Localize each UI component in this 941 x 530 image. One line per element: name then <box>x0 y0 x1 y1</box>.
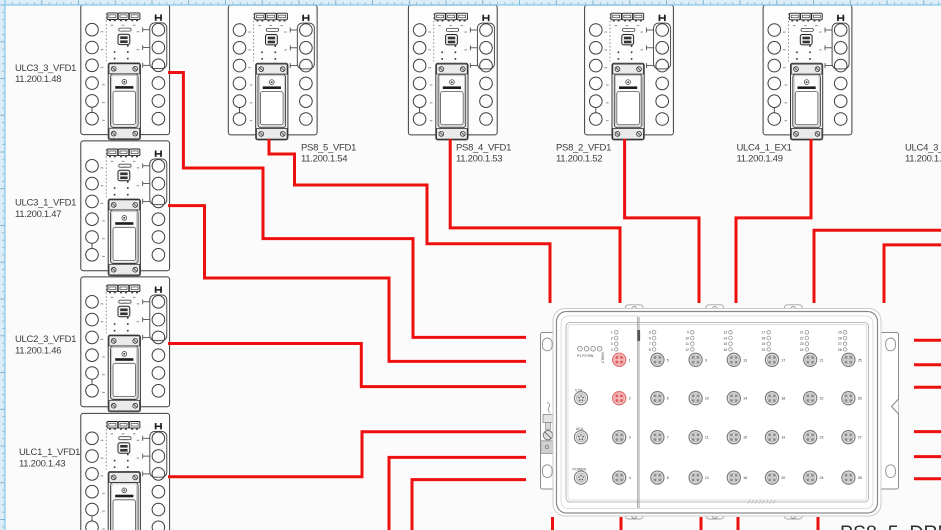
svg-text:13: 13 <box>723 331 727 335</box>
svg-text:8: 8 <box>667 476 669 480</box>
svg-text:28: 28 <box>858 476 862 480</box>
svg-text:4: 4 <box>611 348 613 352</box>
svg-text:3: 3 <box>629 436 631 440</box>
svg-text:9: 9 <box>687 331 689 335</box>
svg-text:15: 15 <box>723 342 727 346</box>
svg-text:11.200.1.53: 11.200.1.53 <box>456 154 502 165</box>
svg-text:11.200.1.50: 11.200.1.50 <box>905 154 941 165</box>
svg-text:11.200.1.52: 11.200.1.52 <box>556 154 602 165</box>
svg-text:19: 19 <box>781 436 785 440</box>
svg-text:17: 17 <box>761 331 765 335</box>
svg-text:11.200.1.54: 11.200.1.54 <box>301 154 347 165</box>
svg-text:27: 27 <box>838 342 842 346</box>
svg-text:25: 25 <box>858 358 862 362</box>
svg-text:11.200.1.49: 11.200.1.49 <box>737 154 783 165</box>
svg-text:11: 11 <box>705 436 709 440</box>
svg-text:11.200.1.43: 11.200.1.43 <box>19 458 65 469</box>
svg-text:10: 10 <box>705 397 709 401</box>
svg-text:V.24: V.24 <box>575 389 582 393</box>
svg-text:14: 14 <box>743 397 747 401</box>
svg-text:19: 19 <box>761 342 765 346</box>
svg-text:11: 11 <box>685 342 689 346</box>
svg-text:ULC2_3_VFD1: ULC2_3_VFD1 <box>15 334 76 345</box>
svg-text:11.200.1.46: 11.200.1.46 <box>15 345 61 356</box>
svg-text:21: 21 <box>820 358 824 362</box>
svg-text:23: 23 <box>820 436 824 440</box>
svg-text:11.200.1.47: 11.200.1.47 <box>15 209 61 220</box>
svg-text:ACA: ACA <box>576 427 584 431</box>
svg-text:9: 9 <box>705 358 707 362</box>
svg-text:ULC4_1_EX1: ULC4_1_EX1 <box>737 142 792 153</box>
svg-text:3: 3 <box>611 342 613 346</box>
svg-text:22: 22 <box>820 397 824 401</box>
svg-text:6: 6 <box>649 336 651 340</box>
svg-text:16: 16 <box>723 348 727 352</box>
svg-text:24: 24 <box>820 476 824 480</box>
svg-text:20: 20 <box>761 348 765 352</box>
svg-text:20: 20 <box>781 476 785 480</box>
svg-text:26: 26 <box>838 336 842 340</box>
svg-text:12: 12 <box>705 476 709 480</box>
svg-text:ULC1_1_VFD1: ULC1_1_VFD1 <box>19 447 80 458</box>
svg-text:POWER: POWER <box>573 468 587 472</box>
svg-text:2: 2 <box>611 336 613 340</box>
svg-text:12: 12 <box>685 348 689 352</box>
svg-text:7: 7 <box>649 342 651 346</box>
svg-text:1: 1 <box>611 331 613 335</box>
svg-text:PS8_5_VFD1: PS8_5_VFD1 <box>301 142 356 153</box>
svg-text:2: 2 <box>629 397 631 401</box>
svg-text:18: 18 <box>761 336 765 340</box>
svg-text:17: 17 <box>781 358 785 362</box>
svg-text:25: 25 <box>838 331 842 335</box>
svg-text:5: 5 <box>667 358 669 362</box>
svg-text:16: 16 <box>743 476 747 480</box>
svg-text:11.200.1.48: 11.200.1.48 <box>15 74 61 85</box>
svg-text:10: 10 <box>685 336 689 340</box>
svg-text:ULC3_3_VFD1: ULC3_3_VFD1 <box>15 63 76 74</box>
svg-text:28: 28 <box>838 348 842 352</box>
svg-text:PS8_5_DRM1: PS8_5_DRM1 <box>840 522 941 530</box>
svg-text:18: 18 <box>781 397 785 401</box>
svg-text:6: 6 <box>667 397 669 401</box>
svg-text:7: 7 <box>667 436 669 440</box>
svg-text:ULC3_1_VFD1: ULC3_1_VFD1 <box>15 198 76 209</box>
svg-text:24: 24 <box>800 348 804 352</box>
svg-text:13: 13 <box>743 358 747 362</box>
svg-text:14: 14 <box>723 336 727 340</box>
svg-text:26: 26 <box>858 397 862 401</box>
svg-text:P1 P2 RW: P1 P2 RW <box>577 354 594 358</box>
svg-text:PS8_4_VFD1: PS8_4_VFD1 <box>456 142 511 153</box>
svg-text:PS8_2_VFD1: PS8_2_VFD1 <box>556 142 611 153</box>
svg-text:ULC4_3_VFD1: ULC4_3_VFD1 <box>905 142 941 153</box>
svg-text:15: 15 <box>743 436 747 440</box>
svg-text:8: 8 <box>649 348 651 352</box>
svg-text:22: 22 <box>800 336 804 340</box>
svg-text:21: 21 <box>800 331 804 335</box>
svg-text:5: 5 <box>649 331 651 335</box>
svg-text:4: 4 <box>629 476 631 480</box>
svg-text:FAULT: FAULT <box>600 353 604 364</box>
svg-text:1: 1 <box>629 358 631 362</box>
svg-text:27: 27 <box>858 436 862 440</box>
svg-text:23: 23 <box>800 342 804 346</box>
